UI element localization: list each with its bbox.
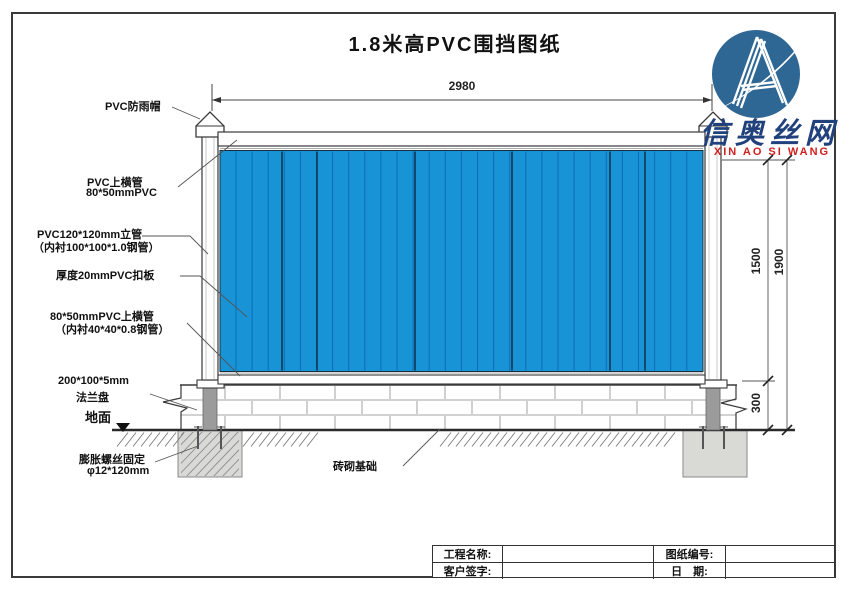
table-drawing-no-label: 图纸编号:	[654, 546, 726, 563]
foundation-left	[178, 430, 242, 477]
brick-base-wall	[163, 385, 746, 430]
drawing-sheet: 1.8米高PVC围挡图纸 PVC防雨帽 PVC上横管 80*50mmPVC PV…	[0, 0, 850, 590]
label-flange-2: 法兰盘	[76, 389, 109, 405]
table-signature-value	[503, 563, 654, 579]
title-block-table: 工程名称: 图纸编号: 客户签字: 日 期:	[432, 545, 835, 578]
foundation-right	[683, 430, 747, 477]
table-drawing-no-value	[726, 546, 836, 563]
label-flange-1: 200*100*5mm	[58, 375, 129, 387]
table-date-label: 日 期:	[654, 563, 726, 579]
label-top-rail-2: 80*50mmPVC	[86, 187, 157, 199]
dim-panel-height-1500: 1500	[749, 221, 763, 301]
table-date-value	[726, 563, 836, 579]
table-project-value	[503, 546, 654, 563]
label-post-2: （内衬100*100*1.0钢管）	[33, 239, 160, 255]
label-foundation: 砖砌基础	[333, 458, 377, 474]
logo-mark	[702, 30, 812, 118]
label-anchor-2: φ12*120mm	[87, 465, 149, 477]
top-rail	[218, 132, 705, 149]
table-project-label: 工程名称:	[433, 546, 503, 563]
dim-total-height-1900: 1900	[772, 222, 786, 302]
page-title: 1.8米高PVC围挡图纸	[340, 28, 570, 57]
dim-base-height-300: 300	[749, 363, 763, 443]
label-mid-rail-2: （内衬40*40*0.8钢管）	[55, 321, 169, 337]
label-ground: 地面	[85, 407, 111, 426]
label-panel: 厚度20mmPVC扣板	[56, 267, 154, 283]
label-rain-cap: PVC防雨帽	[105, 98, 161, 114]
technical-drawing	[0, 0, 850, 590]
logo-company-name-en: XIN AO SI WANG	[702, 146, 842, 158]
bottom-rail	[218, 373, 705, 384]
steel-insert-right	[706, 388, 720, 430]
dim-width-2980: 2980	[432, 79, 492, 93]
table-signature-label: 客户签字:	[433, 563, 503, 579]
steel-insert-left	[203, 388, 217, 430]
